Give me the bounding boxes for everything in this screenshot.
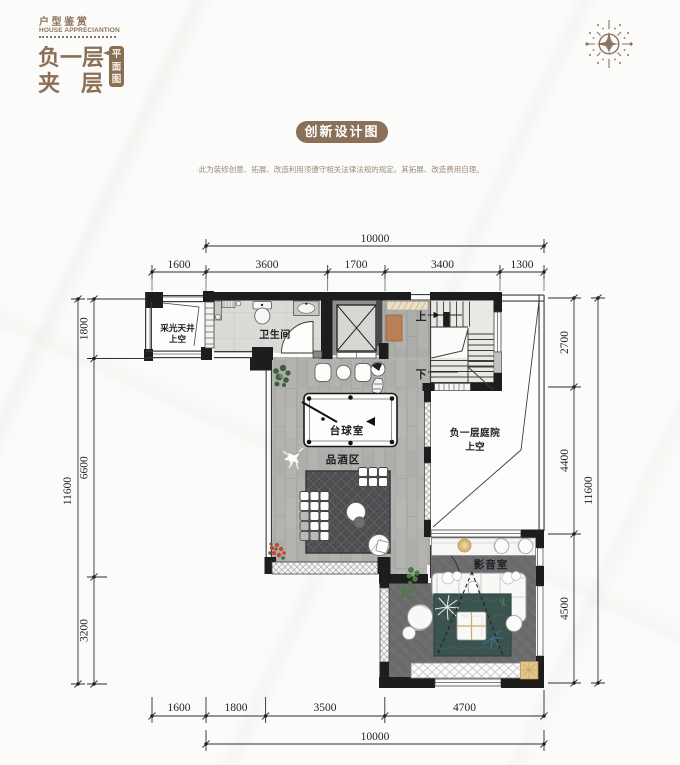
- svg-text:1600: 1600: [168, 259, 191, 271]
- svg-text:11600: 11600: [583, 476, 595, 505]
- svg-text:10000: 10000: [361, 731, 390, 743]
- svg-text:3400: 3400: [431, 259, 454, 271]
- svg-text:卫生间: 卫生间: [259, 328, 291, 341]
- svg-text:台球室: 台球室: [330, 424, 365, 437]
- svg-text:1600: 1600: [168, 702, 191, 714]
- svg-text:6600: 6600: [79, 456, 91, 479]
- svg-text:4700: 4700: [453, 702, 476, 714]
- svg-text:上: 上: [416, 309, 427, 323]
- svg-text:1300: 1300: [511, 259, 534, 271]
- svg-text:下: 下: [416, 368, 427, 381]
- svg-text:4400: 4400: [559, 449, 571, 472]
- svg-text:负一层庭院: 负一层庭院: [450, 427, 500, 439]
- svg-text:4500: 4500: [559, 597, 571, 620]
- svg-text:上空: 上空: [465, 441, 485, 453]
- svg-text:影音室: 影音室: [474, 558, 509, 571]
- svg-text:1800: 1800: [225, 702, 248, 714]
- svg-text:3500: 3500: [314, 702, 337, 714]
- svg-text:采光天井: 采光天井: [159, 322, 195, 333]
- svg-text:3200: 3200: [79, 619, 91, 642]
- svg-text:1800: 1800: [79, 317, 91, 340]
- svg-text:10000: 10000: [361, 233, 390, 245]
- svg-text:2700: 2700: [559, 331, 571, 354]
- svg-text:上空: 上空: [169, 333, 187, 344]
- svg-text:3600: 3600: [256, 259, 279, 271]
- svg-text:品酒区: 品酒区: [326, 453, 361, 466]
- svg-text:1700: 1700: [345, 259, 368, 271]
- svg-text:11600: 11600: [62, 477, 74, 506]
